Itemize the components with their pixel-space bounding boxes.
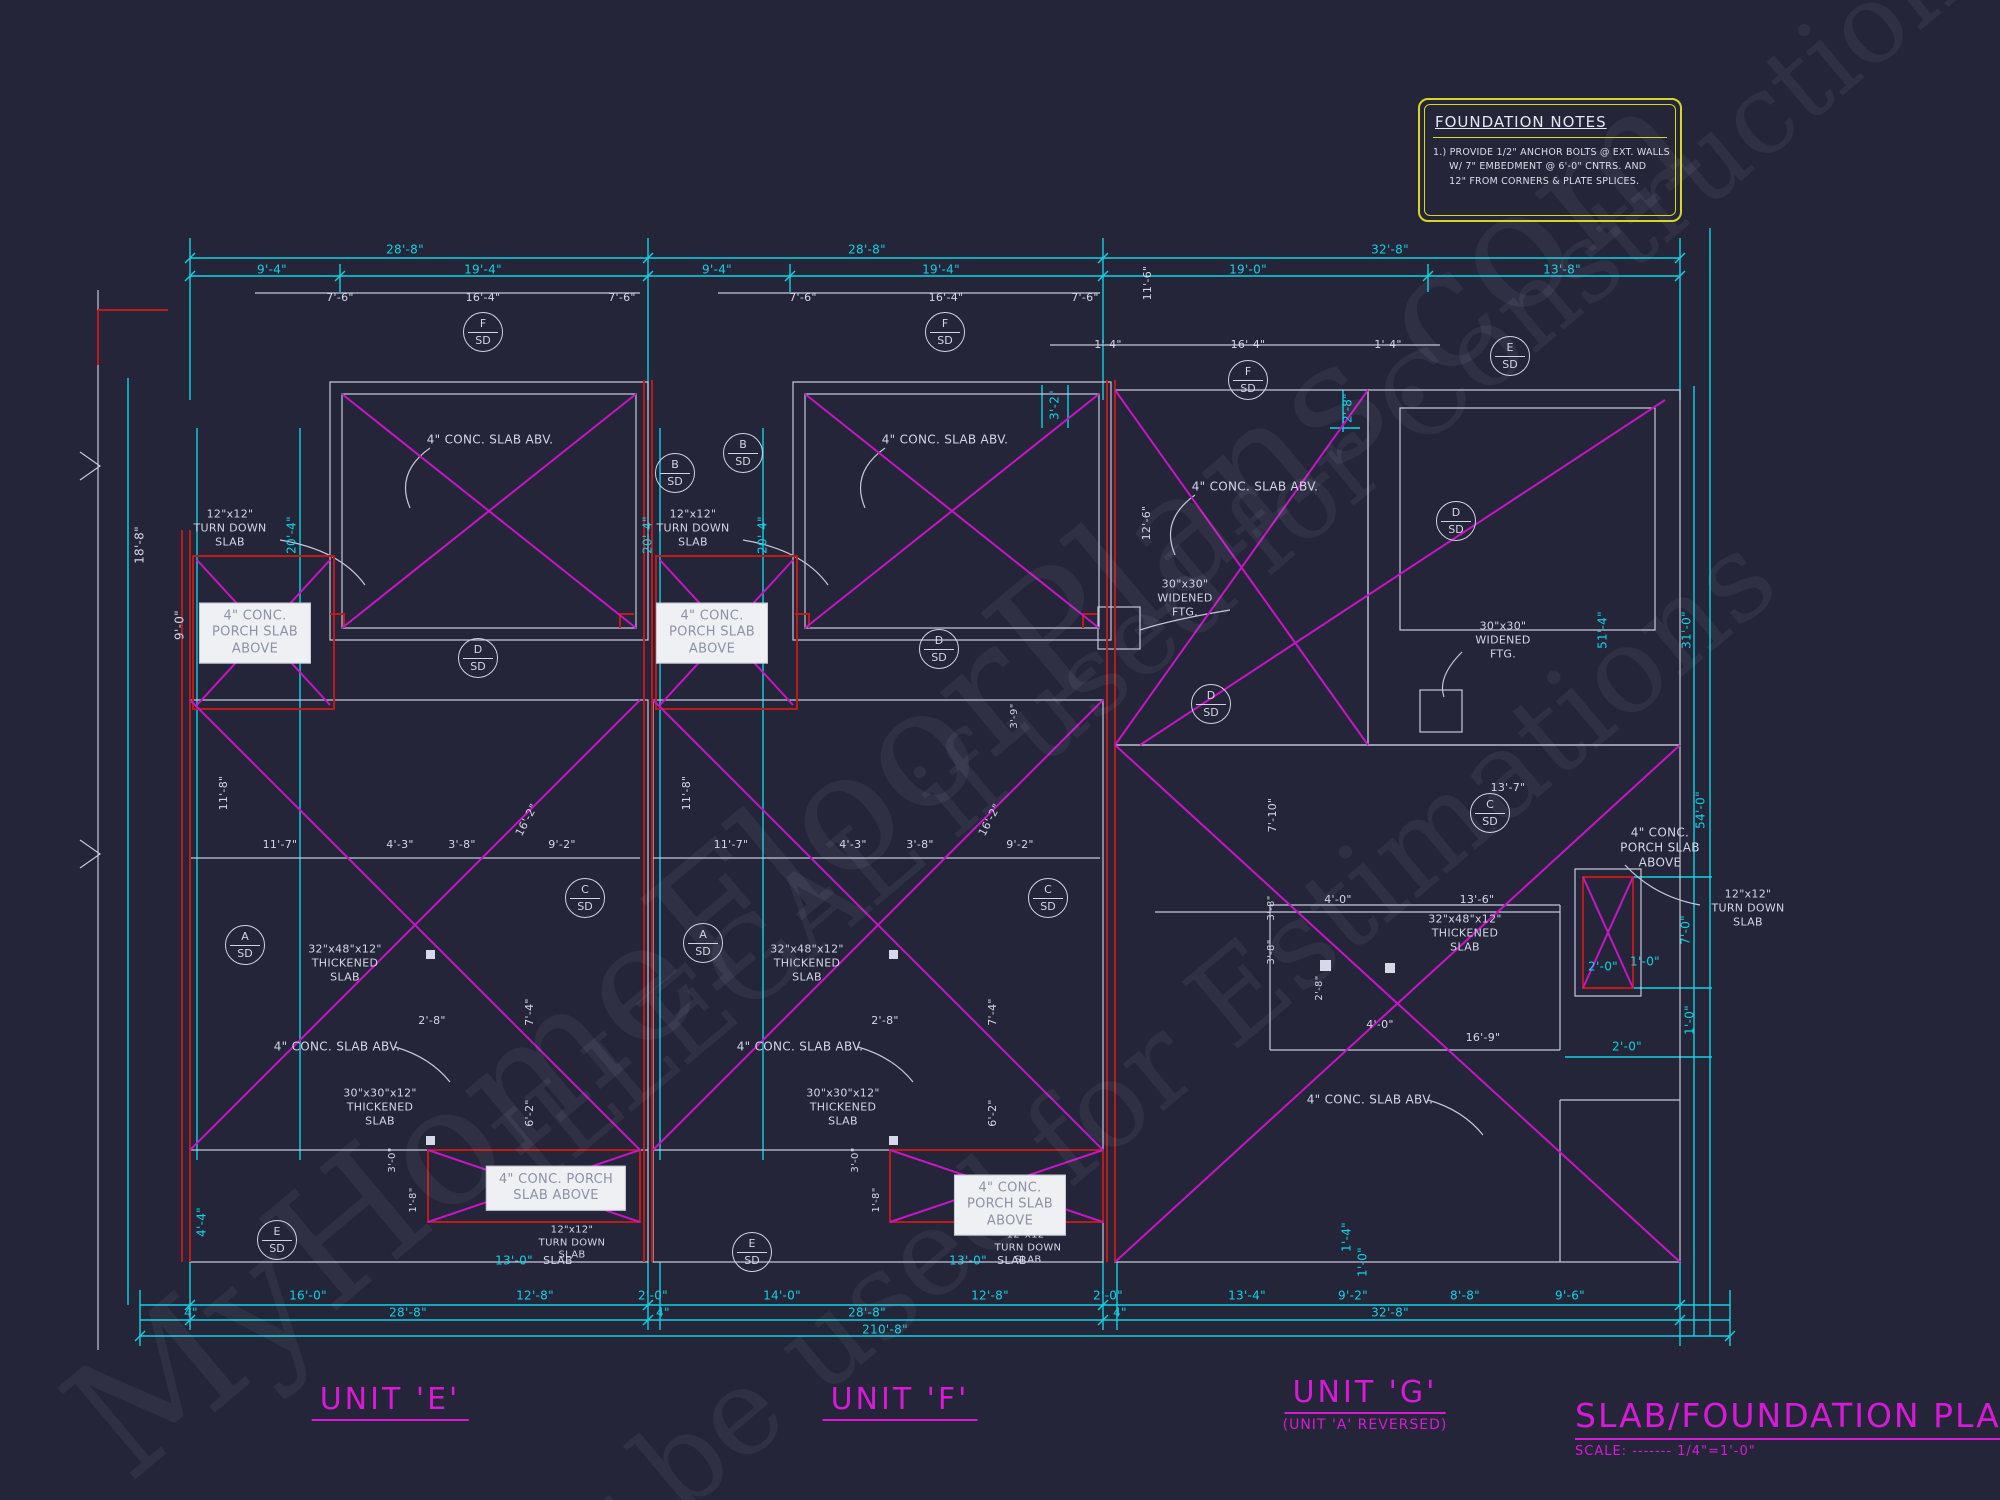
callout-sheet: SD: [237, 947, 252, 959]
callout-divider: [1233, 380, 1263, 381]
foundation-notes-inner: FOUNDATION NOTES 1.) PROVIDE 1/2" ANCHOR…: [1424, 104, 1676, 216]
sheet-title: SLAB/FOUNDATION PLAN: [1575, 1396, 2000, 1440]
unit-label: UNIT 'F': [823, 1382, 978, 1421]
callout-letter: F: [942, 318, 948, 331]
callout-sheet: SD: [667, 475, 682, 487]
callout-sheet: SD: [1240, 382, 1255, 394]
callout-divider: [728, 453, 758, 454]
callout-sheet: SD: [744, 1254, 759, 1266]
callout-divider: [230, 945, 260, 946]
callout-sheet: SD: [1448, 523, 1463, 535]
callout-letter: C: [1044, 884, 1052, 897]
callout-letter: E: [749, 1238, 756, 1251]
detail-callout-d: DSD: [1436, 501, 1476, 541]
detail-callout-a: ASD: [225, 925, 265, 965]
detail-callout-d: DSD: [1191, 684, 1231, 724]
callout-sheet: SD: [470, 660, 485, 672]
title-block: SLAB/FOUNDATION PLAN SCALE: ------- 1/4"…: [1575, 1396, 2000, 1459]
detail-callout-c: CSD: [1028, 878, 1068, 918]
foundation-note-line: W/ 7" EMBEDMENT @ 6'-0" CNTRS. AND: [1433, 160, 1667, 174]
callout-sheet: SD: [1502, 358, 1517, 370]
detail-callout-c: CSD: [565, 878, 605, 918]
callout-divider: [1495, 356, 1525, 357]
callout-sheet: SD: [475, 334, 490, 346]
callout-letter: D: [1207, 690, 1215, 703]
callout-sheet: SD: [931, 651, 946, 663]
foundation-note-line: 1.) PROVIDE 1/2" ANCHOR BOLTS @ EXT. WAL…: [1433, 146, 1667, 160]
callout-divider: [262, 1240, 292, 1241]
detail-callout-f: FSD: [925, 312, 965, 352]
callout-letter: E: [1507, 342, 1514, 355]
detail-callout-f: FSD: [463, 312, 503, 352]
detail-callout-e: ESD: [732, 1232, 772, 1272]
callout-sheet: SD: [937, 334, 952, 346]
callout-divider: [1441, 521, 1471, 522]
callout-letter: C: [581, 884, 589, 897]
foundation-notes-body: 1.) PROVIDE 1/2" ANCHOR BOLTS @ EXT. WAL…: [1433, 146, 1667, 189]
callout-divider: [1475, 813, 1505, 814]
foundation-note-line: 12" FROM CORNERS & PLATE SPLICES.: [1433, 175, 1667, 189]
callout-letter: B: [739, 439, 747, 452]
units-layer: UNIT 'E'UNIT 'F'UNIT 'G'(UNIT 'A' REVERS…: [0, 0, 2000, 1500]
callout-divider: [924, 649, 954, 650]
callout-letter: F: [1245, 366, 1251, 379]
foundation-plan-sheet: MyHomeFloorPlans.comILLEGAL if used for …: [0, 0, 2000, 1500]
detail-callout-f: FSD: [1228, 360, 1268, 400]
unit-label: UNIT 'G': [1285, 1375, 1446, 1414]
callout-divider: [468, 332, 498, 333]
callout-sheet: SD: [1040, 900, 1055, 912]
callout-letter: F: [480, 318, 486, 331]
foundation-notes-box: FOUNDATION NOTES 1.) PROVIDE 1/2" ANCHOR…: [1418, 98, 1682, 222]
detail-callout-b: BSD: [723, 433, 763, 473]
callout-letter: D: [935, 635, 943, 648]
callout-sheet: SD: [1203, 706, 1218, 718]
detail-callout-b: BSD: [655, 453, 695, 493]
sheet-scale: SCALE: ------- 1/4"=1'-0": [1575, 1444, 2000, 1459]
callout-letter: C: [1486, 799, 1494, 812]
callout-sheet: SD: [695, 945, 710, 957]
callout-divider: [737, 1252, 767, 1253]
detail-callout-a: ASD: [683, 923, 723, 963]
callout-letter: B: [671, 459, 679, 472]
detail-callout-d: DSD: [458, 638, 498, 678]
detail-callout-e: ESD: [1490, 336, 1530, 376]
callout-letter: D: [474, 644, 482, 657]
callout-divider: [1196, 704, 1226, 705]
unit-label: UNIT 'E': [312, 1382, 469, 1421]
callout-letter: D: [1452, 507, 1460, 520]
unit-sublabel: (UNIT 'A' REVERSED): [1283, 1417, 1448, 1433]
callout-sheet: SD: [1482, 815, 1497, 827]
detail-callout-d: DSD: [919, 629, 959, 669]
callout-divider: [1033, 898, 1063, 899]
callout-divider: [688, 943, 718, 944]
callout-sheet: SD: [577, 900, 592, 912]
callout-sheet: SD: [269, 1242, 284, 1254]
callout-letter: A: [241, 931, 249, 944]
callout-divider: [463, 658, 493, 659]
callout-divider: [660, 473, 690, 474]
callout-divider: [930, 332, 960, 333]
detail-callout-c: CSD: [1470, 793, 1510, 833]
callout-sheet: SD: [735, 455, 750, 467]
callout-divider: [570, 898, 600, 899]
detail-callout-e: ESD: [257, 1220, 297, 1260]
callout-letter: E: [274, 1226, 281, 1239]
foundation-notes-title: FOUNDATION NOTES: [1433, 111, 1667, 138]
callout-letter: A: [699, 929, 707, 942]
